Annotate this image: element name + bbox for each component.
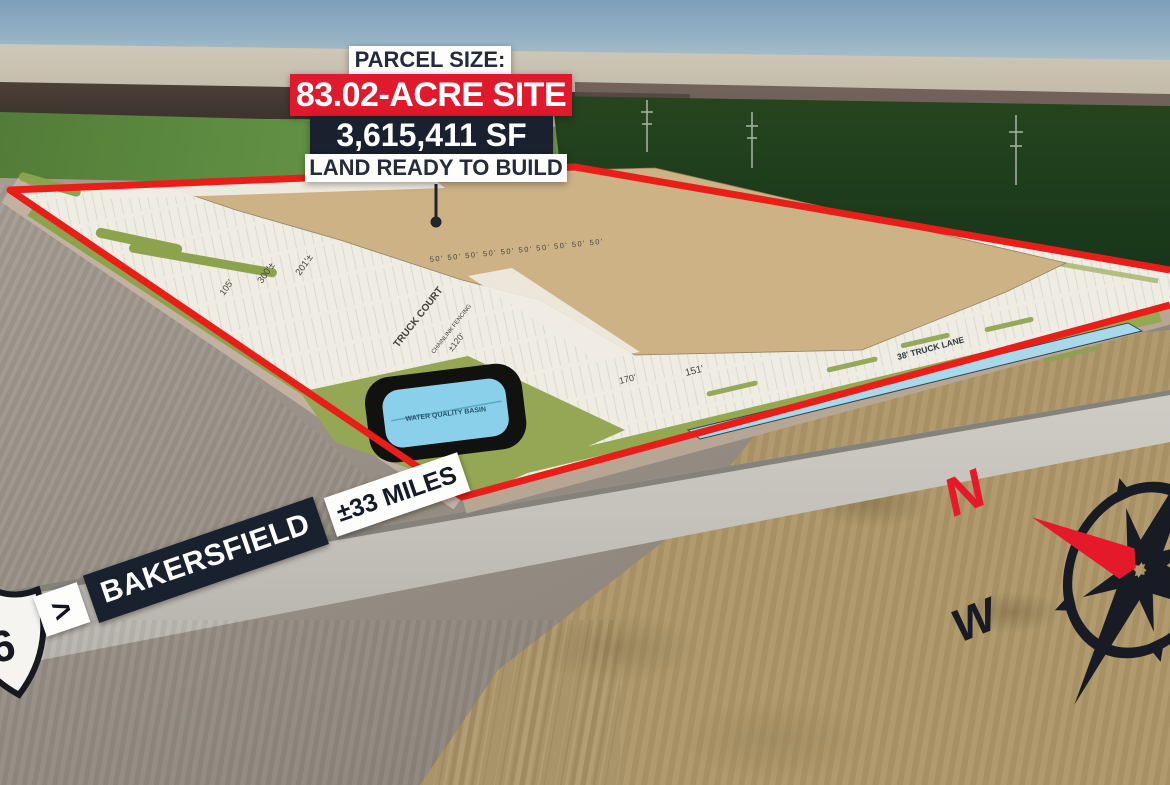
compass-star-points <box>1016 420 1170 720</box>
compass-north-letter: N <box>941 455 990 530</box>
land-ready-banner: LAND READY TO BUILD <box>305 154 567 182</box>
compass-rose: N W <box>940 420 1170 720</box>
callout-pointer-dot <box>431 217 442 228</box>
parcel-size-heading: PARCEL SIZE: <box>349 46 511 74</box>
compass-west-letter: W <box>949 586 1000 654</box>
acreage-banner: 83.02-ACRE SITE <box>290 74 572 116</box>
transmission-towers <box>641 100 1023 185</box>
compass-north-arrow <box>1025 502 1143 583</box>
aerial-site-marketing-image: WATER QUALITY BASIN 50' 50' 50' 50' 50' … <box>0 0 1170 785</box>
square-feet-banner: 3,615,411 SF <box>310 116 553 154</box>
